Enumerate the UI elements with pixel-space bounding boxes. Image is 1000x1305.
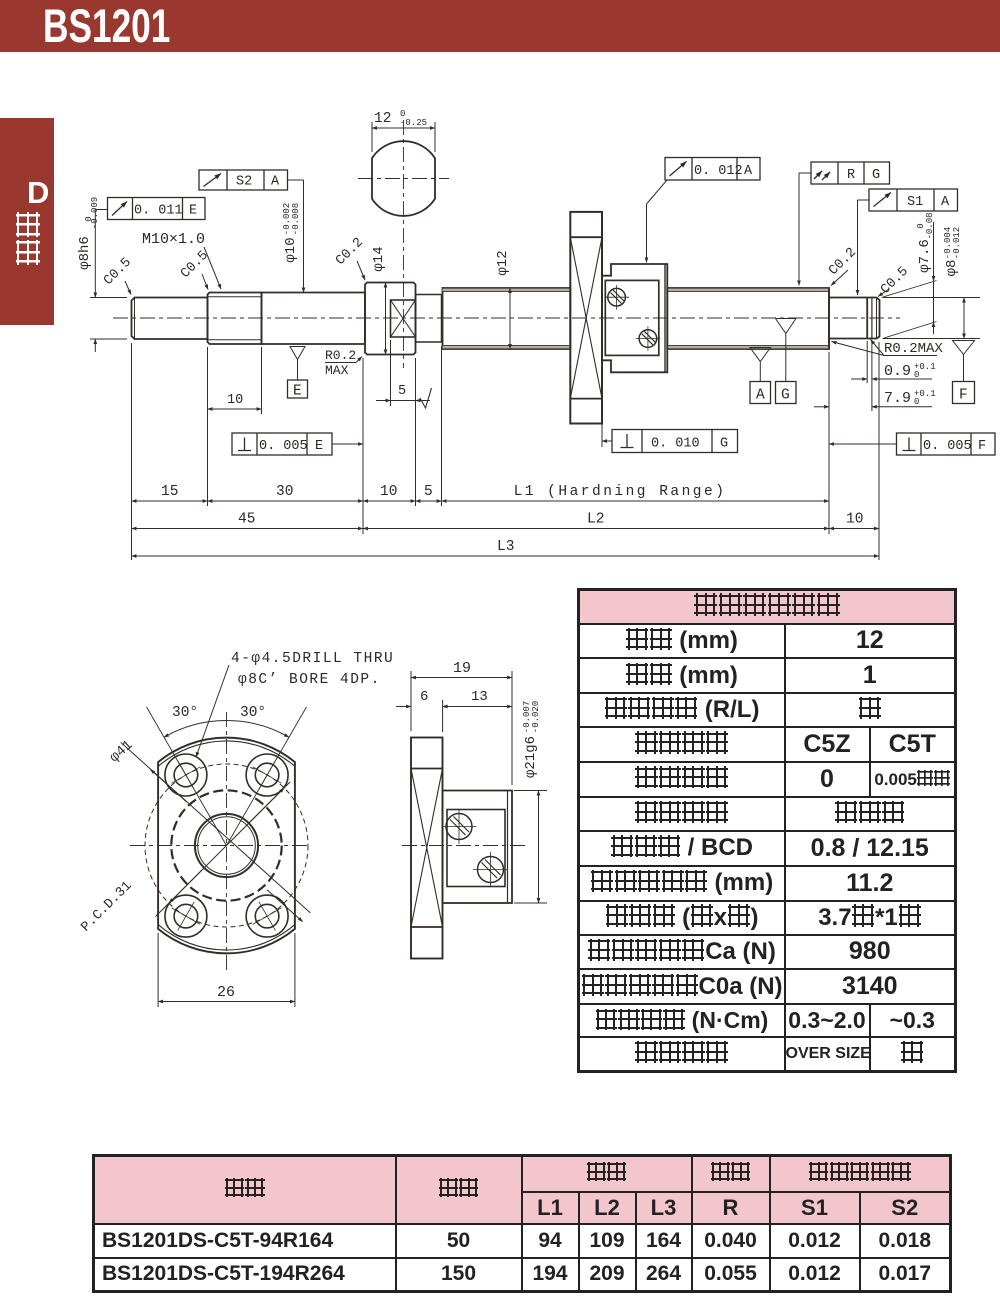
svg-text:R0.2: R0.2 <box>325 348 356 363</box>
svg-text:30°: 30° <box>172 705 198 721</box>
svg-text:0.9: 0.9 <box>884 363 911 380</box>
svg-text:15: 15 <box>161 484 178 500</box>
svg-text:S1: S1 <box>907 195 923 210</box>
svg-text:12: 12 <box>374 111 391 127</box>
svg-text:φ41: φ41 <box>107 737 136 766</box>
svg-text:10: 10 <box>227 393 243 408</box>
svg-text:φ10: φ10 <box>283 237 299 262</box>
svg-text:0. 010: 0. 010 <box>651 437 700 452</box>
svg-text:G: G <box>872 168 880 183</box>
svg-text:L2: L2 <box>587 512 604 528</box>
svg-text:10: 10 <box>846 512 863 528</box>
svg-text:S2: S2 <box>236 175 252 190</box>
svg-text:L1 (Hardning Range): L1 (Hardning Range) <box>514 484 727 500</box>
svg-text:L3: L3 <box>497 539 514 555</box>
svg-text:φ14: φ14 <box>371 246 387 271</box>
svg-text:F: F <box>978 439 986 454</box>
svg-text:0. 005: 0. 005 <box>923 439 972 454</box>
svg-text:E: E <box>315 439 323 454</box>
svg-text:19: 19 <box>453 660 471 677</box>
svg-text:φ21g6: φ21g6 <box>523 736 539 778</box>
svg-text:10: 10 <box>380 484 397 500</box>
svg-text:A: A <box>941 195 950 210</box>
svg-text:A: A <box>744 164 753 179</box>
svg-text:φ8h6: φ8h6 <box>77 236 93 270</box>
svg-text:30°: 30° <box>240 705 266 721</box>
svg-text:0: 0 <box>914 370 919 380</box>
svg-text:F: F <box>959 388 968 404</box>
svg-text:C0.2: C0.2 <box>333 235 367 269</box>
svg-text:45: 45 <box>238 512 255 528</box>
svg-text:φ8C’ BORE 4DP.: φ8C’ BORE 4DP. <box>238 672 381 688</box>
svg-text:5: 5 <box>398 384 406 399</box>
svg-text:13: 13 <box>471 689 488 705</box>
svg-text:R: R <box>847 168 855 183</box>
svg-text:-0.008: -0.008 <box>291 203 301 235</box>
svg-text:-0.012: -0.012 <box>952 227 962 259</box>
svg-text:-0.020: -0.020 <box>531 701 541 733</box>
svg-text:0. 012: 0. 012 <box>694 164 743 179</box>
svg-text:G: G <box>720 437 728 452</box>
svg-text:C0.2: C0.2 <box>826 245 860 279</box>
svg-text:R0.2MAX: R0.2MAX <box>884 341 943 357</box>
svg-text:MAX: MAX <box>325 363 349 378</box>
svg-text:C0.5: C0.5 <box>101 255 135 289</box>
svg-text:6: 6 <box>420 689 428 705</box>
svg-text:E: E <box>189 204 197 219</box>
svg-text:-0.009: -0.009 <box>90 197 100 229</box>
svg-text:26: 26 <box>217 984 235 1001</box>
svg-text:0. 011: 0. 011 <box>134 204 183 219</box>
svg-text:-0.25: -0.25 <box>400 118 427 128</box>
svg-text:M10×1.0: M10×1.0 <box>142 231 205 248</box>
svg-text:E: E <box>293 384 302 400</box>
svg-text:φ12: φ12 <box>495 250 511 275</box>
svg-text:φ8: φ8 <box>944 260 960 277</box>
svg-text:4-φ4.5DRILL THRU: 4-φ4.5DRILL THRU <box>231 651 394 667</box>
svg-text:P.C.D.31: P.C.D.31 <box>79 879 135 935</box>
svg-text:0. 005: 0. 005 <box>259 439 308 454</box>
svg-text:5: 5 <box>424 484 433 500</box>
svg-text:7.9: 7.9 <box>884 390 911 407</box>
svg-text:G: G <box>781 388 790 404</box>
svg-text:A: A <box>271 175 280 190</box>
svg-text:0: 0 <box>914 397 919 407</box>
svg-text:A: A <box>756 388 765 404</box>
svg-text:30: 30 <box>276 484 293 500</box>
svg-text:φ7.6: φ7.6 <box>917 239 933 273</box>
